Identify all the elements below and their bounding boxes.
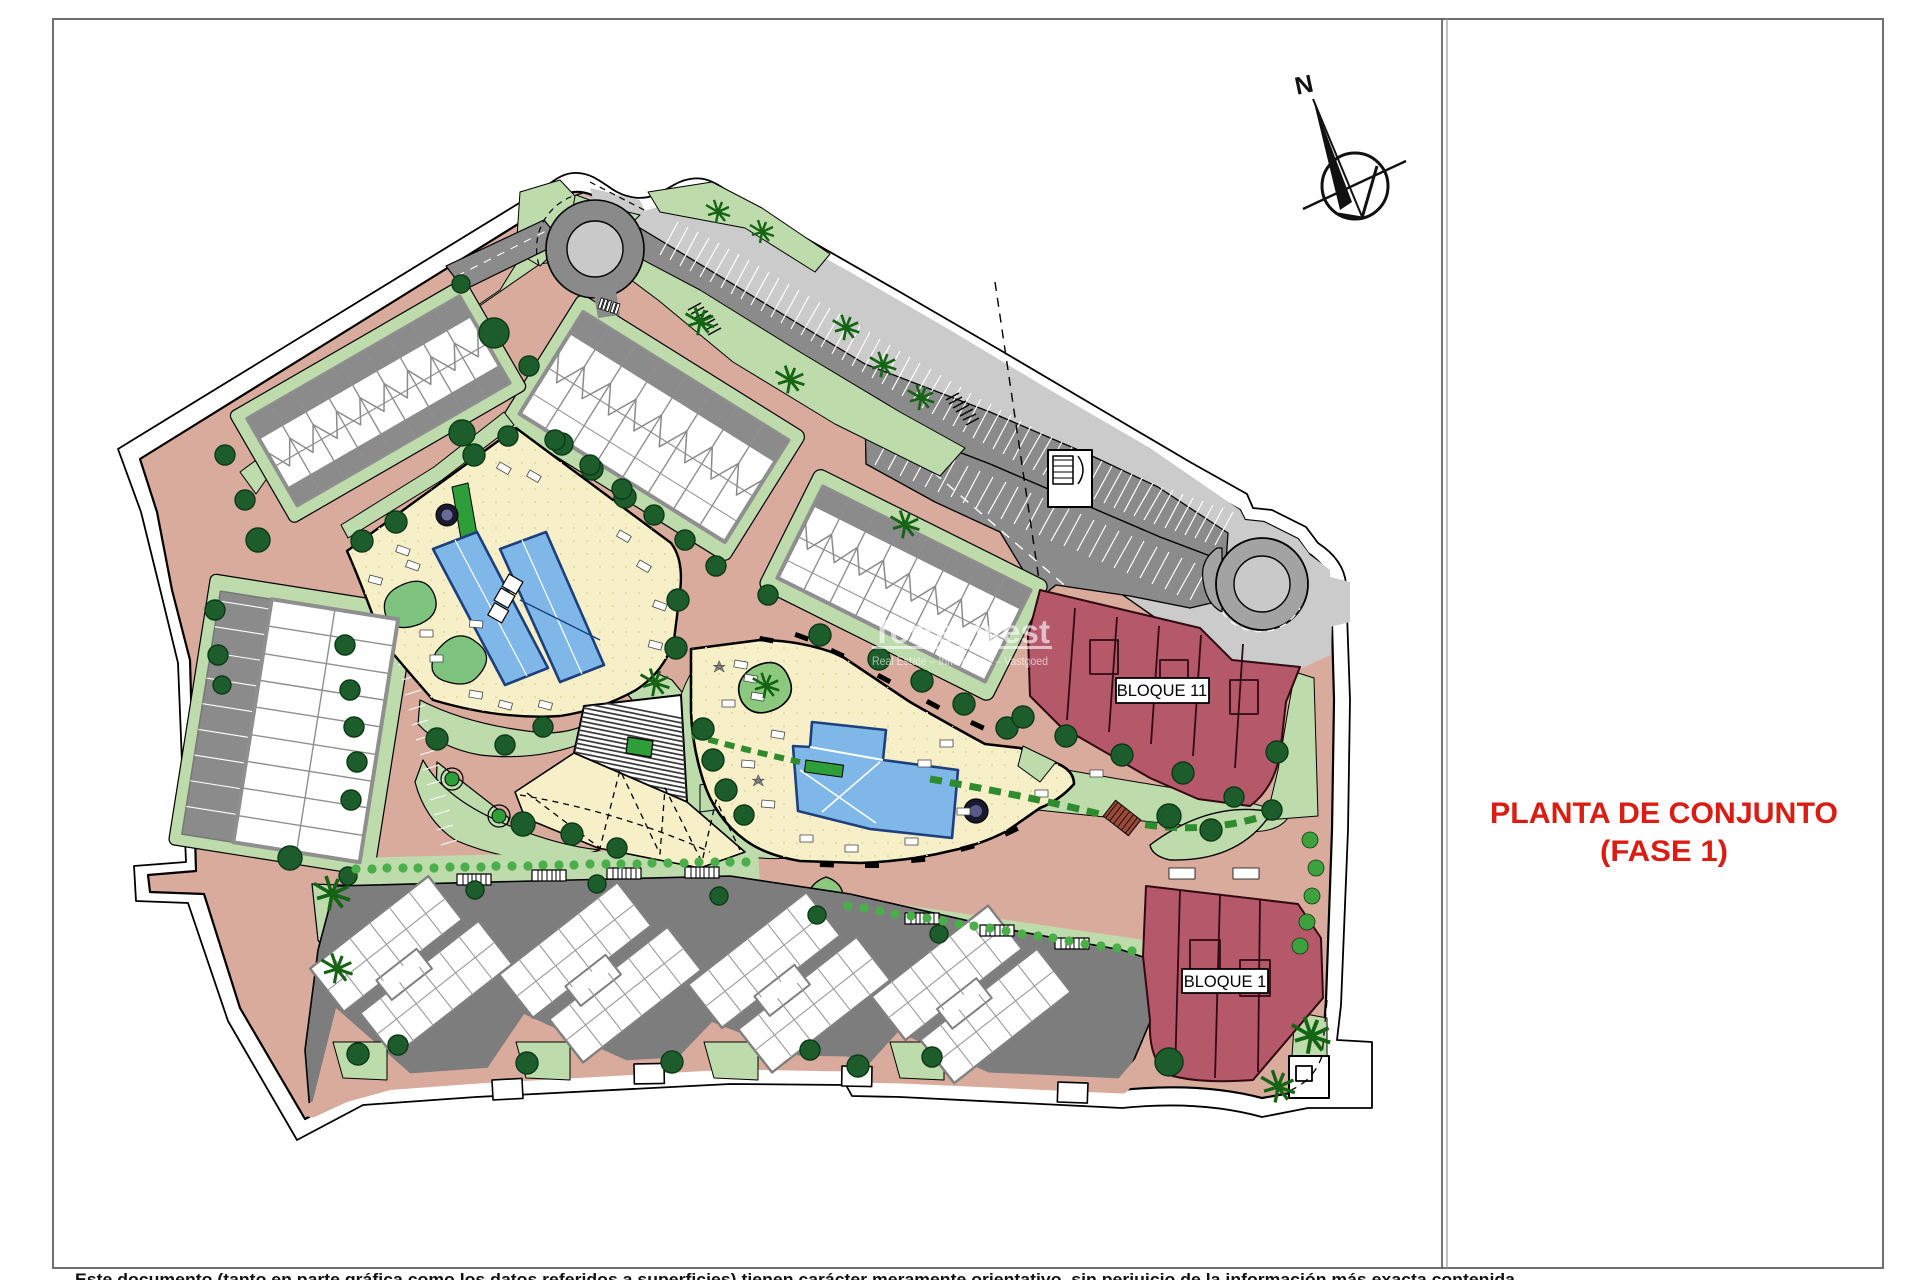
svg-text:(FASE 1): (FASE 1) — [1600, 835, 1728, 868]
svg-text:Real Estate – Inmobiliaria – V: Real Estate – Inmobiliaria – Vastgoed — [872, 654, 1048, 668]
svg-text:Este documento (tanto en parte: Este documento (tanto en parte gráfica c… — [75, 1270, 1516, 1280]
svg-text:PLANTA DE CONJUNTO: PLANTA DE CONJUNTO — [1490, 797, 1838, 830]
svg-text:TorreInvest: TorreInvest — [872, 613, 1050, 650]
svg-text:BLOQUE 1: BLOQUE 1 — [1184, 973, 1267, 991]
svg-text:BLOQUE 11: BLOQUE 11 — [1117, 682, 1207, 700]
